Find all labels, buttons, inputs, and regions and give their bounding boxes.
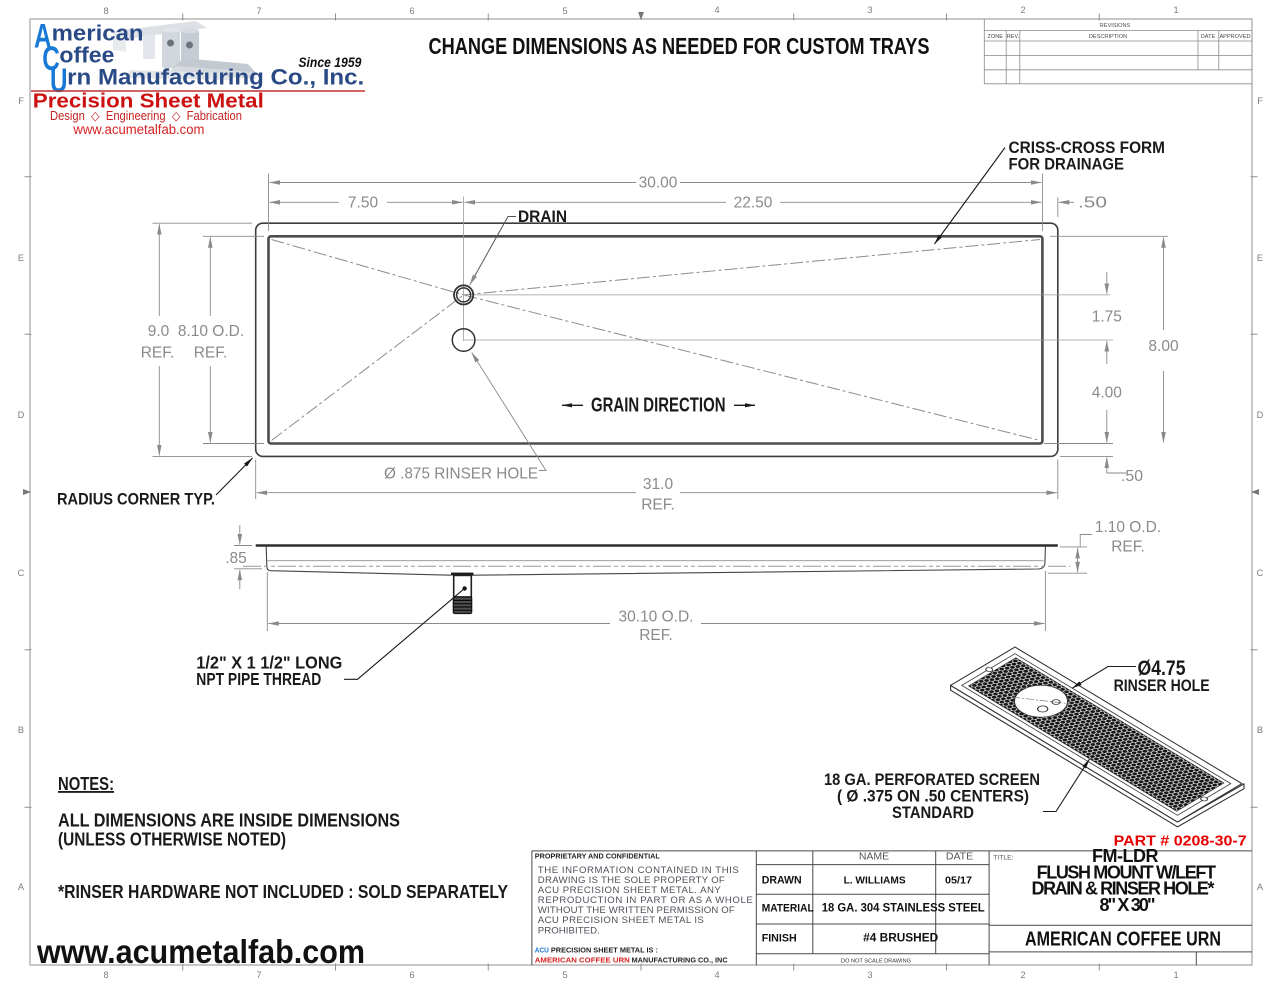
svg-text:5: 5 [562,970,567,980]
svg-text:A: A [18,882,25,892]
svg-text:5: 5 [562,6,567,16]
svg-text:8.00: 8.00 [1148,338,1179,355]
svg-text:.50: .50 [1121,468,1143,485]
svg-text:6: 6 [409,970,414,980]
svg-text:REF.: REF. [141,345,175,362]
svg-text:Since 1959: Since 1959 [298,55,361,70]
svg-text:REVISIONS: REVISIONS [1100,23,1131,29]
svg-text:B: B [18,725,24,735]
svg-text:NAME: NAME [859,851,889,863]
svg-text:DATE: DATE [946,851,973,863]
svg-text:L. WILLIAMS: L. WILLIAMS [844,875,906,887]
svg-text:REF.: REF. [641,497,675,514]
svg-text:B: B [1257,725,1263,735]
svg-text:4.00: 4.00 [1092,385,1123,402]
svg-text:APPROVED: APPROVED [1219,34,1250,40]
svg-text:1.75: 1.75 [1092,309,1122,326]
svg-text:30.00: 30.00 [639,175,678,192]
svg-text:C: C [1257,568,1264,578]
svg-text:1: 1 [1173,970,1178,980]
svg-text:22.50: 22.50 [734,194,773,211]
svg-text:7: 7 [256,6,261,16]
svg-text:8" X 30": 8" X 30" [1100,895,1156,915]
svg-text:1: 1 [1173,5,1178,15]
svg-text:DATE: DATE [1201,34,1216,40]
svg-text:30.10 O.D.: 30.10 O.D. [619,609,694,626]
svg-text:REF.: REF. [1111,539,1145,556]
svg-text:F: F [18,96,24,106]
svg-text:1.10 O.D.: 1.10 O.D. [1095,519,1161,536]
svg-text:REF.: REF. [194,345,228,362]
svg-text:ACU: ACU [535,946,549,955]
svg-text:.50: .50 [1078,195,1107,212]
svg-text:NPT PIPE THREAD: NPT PIPE THREAD [196,669,321,689]
svg-text:7.50: 7.50 [348,194,379,211]
svg-text:RINSER HOLE: RINSER HOLE [1114,677,1210,695]
svg-text:DRAWN: DRAWN [762,875,802,887]
svg-text:FOR DRAINAGE: FOR DRAINAGE [1009,155,1125,174]
svg-text:AMERICAN COFFEE URN: AMERICAN COFFEE URN [1025,928,1221,951]
svg-text:RADIUS CORNER TYP.: RADIUS CORNER TYP. [57,490,215,509]
svg-text:4: 4 [714,5,719,15]
svg-text:AMERICAN COFFEE URN: AMERICAN COFFEE URN [535,956,630,965]
svg-text:D: D [18,410,25,420]
svg-text:2: 2 [1020,970,1025,980]
svg-text:2: 2 [1020,5,1025,15]
svg-text:18 GA. 304 STAINLESS STEEL: 18 GA. 304 STAINLESS STEEL [822,903,985,915]
svg-text:CHANGE DIMENSIONS AS NEEDED FO: CHANGE DIMENSIONS AS NEEDED FOR CUSTOM T… [429,33,930,59]
svg-text:#4 BRUSHED: #4 BRUSHED [863,933,938,945]
svg-text:PROHIBITED.: PROHIBITED. [538,926,600,937]
svg-text:REV.: REV. [1007,34,1020,40]
svg-text:05/17: 05/17 [945,875,972,887]
svg-text:GRAIN DIRECTION: GRAIN DIRECTION [591,394,726,417]
svg-text:F: F [1257,96,1263,106]
svg-text:3: 3 [867,970,872,980]
svg-text:.85: .85 [225,550,247,567]
svg-text:8: 8 [103,970,108,980]
svg-text:C: C [18,568,25,578]
svg-text:TITLE:: TITLE: [993,854,1014,861]
svg-text:DO NOT SCALE DRAWING: DO NOT SCALE DRAWING [841,959,911,965]
svg-text:www.acumetalfab.com: www.acumetalfab.com [36,933,365,970]
svg-text:6: 6 [409,6,414,16]
svg-text:8: 8 [103,6,108,16]
svg-text:E: E [18,253,24,263]
svg-text:(UNLESS OTHERWISE NOTED): (UNLESS OTHERWISE NOTED) [58,829,286,850]
svg-text:31.0: 31.0 [643,476,674,493]
svg-text:ALL DIMENSIONS ARE INSIDE DIME: ALL DIMENSIONS ARE INSIDE DIMENSIONS [58,810,400,831]
svg-text:8.10 O.D.: 8.10 O.D. [178,323,244,340]
svg-text:4: 4 [714,970,719,980]
svg-text:www.acumetalfab.com: www.acumetalfab.com [72,122,204,137]
svg-text:A: A [1257,882,1264,892]
svg-text:PROPRIETARY AND CONFIDENTIAL: PROPRIETARY AND CONFIDENTIAL [535,852,660,861]
svg-text:Design ◇ Engineering ◇ Fab: Design ◇ Engineering ◇ Fabrication [50,109,242,123]
svg-text:E: E [1257,253,1263,263]
svg-text:D: D [1257,410,1264,420]
svg-text:REF.: REF. [639,627,673,644]
svg-text:PRECISION SHEET METAL IS :: PRECISION SHEET METAL IS : [551,946,658,955]
svg-text:9.0: 9.0 [148,323,170,340]
svg-text:DESCRIPTION: DESCRIPTION [1089,34,1127,40]
svg-text:MANUFACTURING CO., INC: MANUFACTURING CO., INC [632,956,728,965]
svg-text:DRAIN: DRAIN [518,208,567,226]
svg-text:ZONE: ZONE [987,34,1003,40]
svg-text:FINISH: FINISH [762,933,797,945]
svg-text:NOTES:: NOTES: [58,773,114,794]
svg-text:3: 3 [867,5,872,15]
svg-text:Ø .875 RINSER HOLE: Ø .875 RINSER HOLE [384,466,538,483]
svg-text:*RINSER HARDWARE NOT INCLUDED: *RINSER HARDWARE NOT INCLUDED : SOLD SEP… [58,881,509,902]
svg-text:7: 7 [256,970,261,980]
svg-text:MATERIAL: MATERIAL [762,903,814,915]
svg-text:ACU PRECISION SHEET METAL IS: ACU PRECISION SHEET METAL IS [538,915,704,926]
svg-text:STANDARD: STANDARD [892,803,974,822]
